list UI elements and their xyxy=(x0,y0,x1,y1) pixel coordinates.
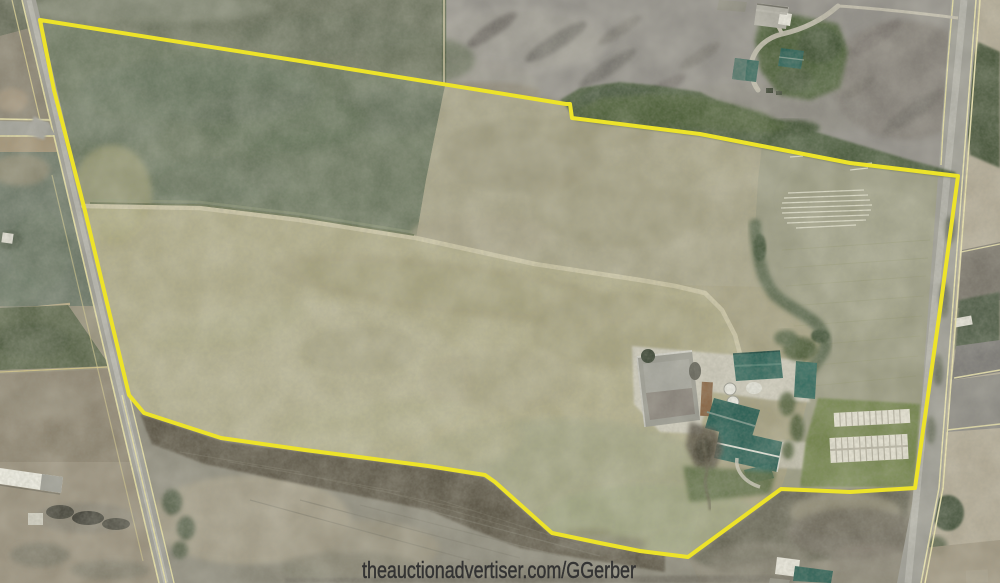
svg-text:theauctionadvertiser.com/GGerb: theauctionadvertiser.com/GGerber xyxy=(362,558,636,583)
